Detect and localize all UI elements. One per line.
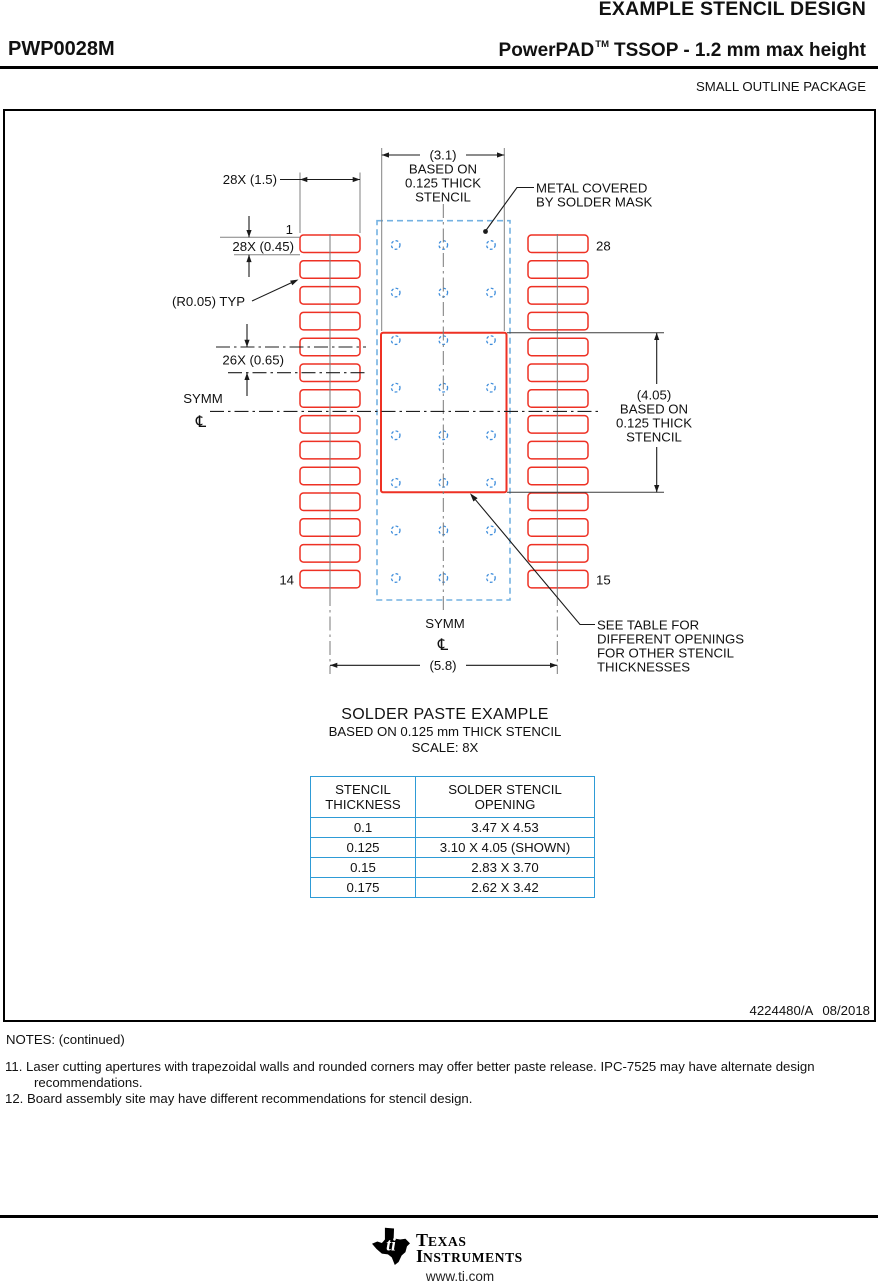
via xyxy=(487,383,496,392)
cell-opening: 2.62 X 3.42 xyxy=(416,878,595,898)
datasheet-page: { "header": { "doc_title": "EXAMPLE STEN… xyxy=(0,0,878,1288)
pad xyxy=(528,467,588,485)
svg-text:28X (0.45): 28X (0.45) xyxy=(232,239,294,254)
brand-initial: I xyxy=(416,1246,423,1266)
svg-text:BY SOLDER MASK: BY SOLDER MASK xyxy=(536,195,652,210)
pad xyxy=(528,312,588,330)
brand-rest: EXAS xyxy=(428,1234,466,1249)
svg-text:DIFFERENT OPENINGS: DIFFERENT OPENINGS xyxy=(597,632,744,647)
svg-text:BASED ON: BASED ON xyxy=(620,402,688,417)
col-header-thickness: STENCILTHICKNESS xyxy=(311,777,416,818)
brand-rest: NSTRUMENTS xyxy=(423,1250,523,1265)
table-row: 0.1 3.47 X 4.53 xyxy=(311,818,595,838)
via xyxy=(391,241,400,250)
table-row: 0.15 2.83 X 3.70 xyxy=(311,858,595,878)
pad xyxy=(528,261,588,279)
svg-text:(4.05): (4.05) xyxy=(637,388,671,403)
via xyxy=(391,336,400,345)
via xyxy=(487,336,496,345)
via xyxy=(487,574,496,583)
note-text: Board assembly site may have different r… xyxy=(27,1091,472,1106)
cell-thickness: 0.175 xyxy=(311,878,416,898)
footer-rule xyxy=(0,1215,878,1218)
note-number: 12. xyxy=(5,1091,23,1106)
svg-text:ti: ti xyxy=(386,1235,396,1255)
example-title-block: SOLDER PASTE EXAMPLE BASED ON 0.125 mm T… xyxy=(225,705,665,756)
pin-28-label: 28 xyxy=(596,239,611,254)
notes-list: 11. Laser cutting apertures with trapezo… xyxy=(5,1059,865,1106)
svg-text:(5.8): (5.8) xyxy=(429,658,456,673)
cell-opening: 3.10 X 4.05 (SHOWN) xyxy=(416,838,595,858)
cell-opening: 3.47 X 4.53 xyxy=(416,818,595,838)
via xyxy=(487,479,496,488)
cell-thickness: 0.125 xyxy=(311,838,416,858)
example-basis: BASED ON 0.125 mm THICK STENCIL xyxy=(225,724,665,740)
via xyxy=(487,241,496,250)
stencil-opening-table: STENCILTHICKNESS SOLDER STENCILOPENING 0… xyxy=(310,776,595,898)
notes-heading: NOTES: (continued) xyxy=(6,1032,125,1047)
svg-text:SEE TABLE FOR: SEE TABLE FOR xyxy=(597,618,699,633)
svg-text:THICKNESSES: THICKNESSES xyxy=(597,660,690,675)
leader-dot xyxy=(483,229,488,234)
col-header-opening: SOLDER STENCILOPENING xyxy=(416,777,595,818)
cell-opening: 2.83 X 3.70 xyxy=(416,858,595,878)
example-scale: SCALE: 8X xyxy=(225,740,665,756)
pad xyxy=(528,493,588,511)
dim-pad-span: (5.8) xyxy=(330,658,557,673)
svg-text:SYMM: SYMM xyxy=(425,616,465,631)
pad xyxy=(528,338,588,356)
svg-text:STENCIL: STENCIL xyxy=(415,190,471,205)
example-title: SOLDER PASTE EXAMPLE xyxy=(225,705,665,724)
via xyxy=(391,526,400,535)
svg-text:STENCIL: STENCIL xyxy=(626,430,682,445)
ti-texas-logo-icon: ti xyxy=(372,1227,410,1265)
svg-text:28X (1.5): 28X (1.5) xyxy=(223,172,277,187)
via xyxy=(487,288,496,297)
table-header-row: STENCILTHICKNESS SOLDER STENCILOPENING xyxy=(311,777,595,818)
svg-text:0.125 THICK: 0.125 THICK xyxy=(405,176,481,191)
via xyxy=(391,383,400,392)
pad xyxy=(528,364,588,382)
pin-15-label: 15 xyxy=(596,573,611,588)
via xyxy=(487,526,496,535)
pin-14-label: 14 xyxy=(279,573,294,588)
via xyxy=(391,288,400,297)
cell-thickness: 0.15 xyxy=(311,858,416,878)
note-number: 11. xyxy=(5,1059,22,1074)
note-text: Laser cutting apertures with trapezoidal… xyxy=(26,1059,815,1090)
svg-text:26X (0.65): 26X (0.65) xyxy=(222,353,284,368)
pad xyxy=(528,441,588,459)
ti-url: www.ti.com xyxy=(374,1269,546,1284)
pad xyxy=(528,390,588,408)
pad xyxy=(528,287,588,305)
via xyxy=(391,431,400,440)
cell-thickness: 0.1 xyxy=(311,818,416,838)
pad xyxy=(528,519,588,537)
mask-callout: METAL COVERED BY SOLDER MASK xyxy=(483,181,652,234)
ti-wordmark: TEXAS INSTRUMENTS xyxy=(416,1233,523,1265)
centerline-symbol: ℄ xyxy=(195,412,207,431)
pad xyxy=(528,416,588,434)
svg-text:METAL COVERED: METAL COVERED xyxy=(536,181,647,196)
pin-1-label: 1 xyxy=(286,222,293,237)
radius-callout: (R0.05) TYP xyxy=(172,280,299,310)
svg-text:SYMM: SYMM xyxy=(183,391,223,406)
svg-text:FOR OTHER STENCIL: FOR OTHER STENCIL xyxy=(597,646,734,661)
svg-text:0.125 THICK: 0.125 THICK xyxy=(616,416,692,431)
svg-text:(R0.05) TYP: (R0.05) TYP xyxy=(172,294,245,309)
pad xyxy=(528,545,588,563)
dim-pitch: 26X (0.65) xyxy=(222,324,284,396)
symm-bottom-label: SYMM ℄ xyxy=(425,616,465,654)
table-row: 0.175 2.62 X 3.42 xyxy=(311,878,595,898)
centerline-symbol: ℄ xyxy=(437,635,449,654)
via xyxy=(391,479,400,488)
table-row: 0.125 3.10 X 4.05 (SHOWN) xyxy=(311,838,595,858)
svg-text:(3.1): (3.1) xyxy=(429,148,456,163)
via xyxy=(487,431,496,440)
note-item-11: 11. Laser cutting apertures with trapezo… xyxy=(5,1059,865,1091)
svg-text:BASED ON: BASED ON xyxy=(409,162,477,177)
pad xyxy=(528,235,588,253)
via xyxy=(391,574,400,583)
note-item-12: 12. Board assembly site may have differe… xyxy=(5,1091,865,1107)
